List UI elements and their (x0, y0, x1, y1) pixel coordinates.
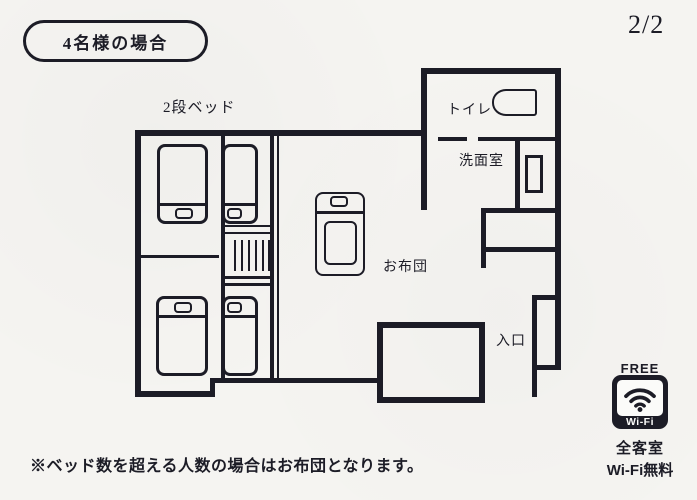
futon-label: お布団 (383, 256, 428, 276)
stair-tread (241, 240, 243, 271)
wifi-badge: Wi-Fi (612, 375, 668, 429)
stair-tread (234, 240, 236, 271)
wall-bottom-left (135, 391, 215, 397)
entry-cap-wall (537, 365, 561, 370)
wifi-note-line1: 全客室 (612, 437, 668, 458)
sink-icon (525, 155, 543, 193)
stair-tread (268, 240, 270, 271)
bed-upper-left-icon (157, 144, 208, 224)
quilt-icon (324, 221, 357, 265)
futon-divider-line (316, 211, 364, 214)
entry-side-wall (532, 295, 537, 397)
bunk-wall-right-inner (277, 136, 279, 378)
stairs-rail-top-1 (223, 225, 270, 228)
wall-left (135, 130, 141, 397)
pillow-icon (330, 196, 348, 207)
closet-left (481, 208, 486, 268)
bed-lower-left-icon (156, 296, 208, 376)
stair-tread (255, 240, 257, 271)
bed-divider-line (158, 315, 206, 318)
pillow-icon (227, 302, 242, 313)
wall-toilet-top (421, 68, 561, 74)
room-plan-page: 4名様の場合 2/2 2段ベッド トイレ 洗面室 お布団 入口 (0, 0, 697, 500)
wifi-badge-label: Wi-Fi (612, 416, 668, 429)
bunk-wall-right (270, 136, 274, 378)
bed-zone-divider (141, 255, 219, 258)
guest-count-badge: 4名様の場合 (23, 20, 208, 62)
pillow-icon (174, 302, 192, 313)
wall-bottom-mid (213, 378, 377, 383)
bed-lower-bunk-icon (222, 296, 258, 376)
stairs-rail-top-2 (223, 232, 270, 235)
bed-divider-line (159, 203, 206, 206)
wall-top (135, 130, 424, 136)
bed-divider-line (224, 315, 256, 318)
toilet-label: トイレ (447, 99, 492, 119)
closet-top (481, 208, 556, 213)
sink-partition (515, 139, 520, 209)
toilet-icon (492, 89, 537, 116)
page-number: 2/2 (628, 10, 664, 40)
washroom-divider-left (438, 137, 467, 141)
entrance-step-box (377, 322, 485, 403)
footnote-text: ※ベッド数を超える人数の場合はお布団となります。 (30, 452, 423, 476)
stairs-rail-bottom-2 (223, 283, 270, 286)
wall-toilet-left (421, 68, 427, 210)
wall-right (555, 68, 561, 370)
futon-icon (315, 192, 365, 276)
stairs-rail-bottom-1 (223, 276, 270, 279)
bed-divider-line (224, 203, 256, 206)
pillow-icon (175, 208, 193, 219)
stair-tread (248, 240, 250, 271)
bunk-bed-label: 2段ベッド (163, 96, 236, 117)
closet-bottom (481, 247, 556, 252)
stair-tread (262, 240, 264, 271)
wifi-note-line2: Wi-Fi無料 (598, 459, 682, 480)
washroom-label: 洗面室 (459, 150, 504, 170)
wifi-free-label: FREE (612, 361, 668, 376)
entrance-label: 入口 (496, 330, 526, 350)
bed-upper-bunk-icon (222, 144, 258, 224)
wifi-icon (617, 380, 663, 416)
pillow-icon (227, 208, 242, 219)
guest-count-label: 4名様の場合 (63, 29, 169, 54)
